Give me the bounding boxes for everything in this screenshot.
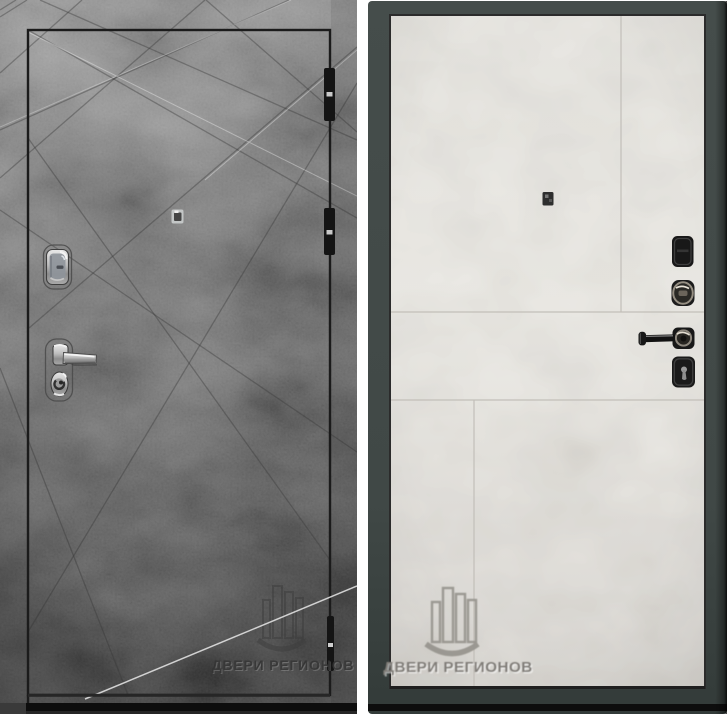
svg-text:ДВЕРИ РЕГИОНОВ: ДВЕРИ РЕГИОНОВ [212,657,355,673]
svg-text:ДВЕРИ РЕГИОНОВ: ДВЕРИ РЕГИОНОВ [383,659,533,676]
